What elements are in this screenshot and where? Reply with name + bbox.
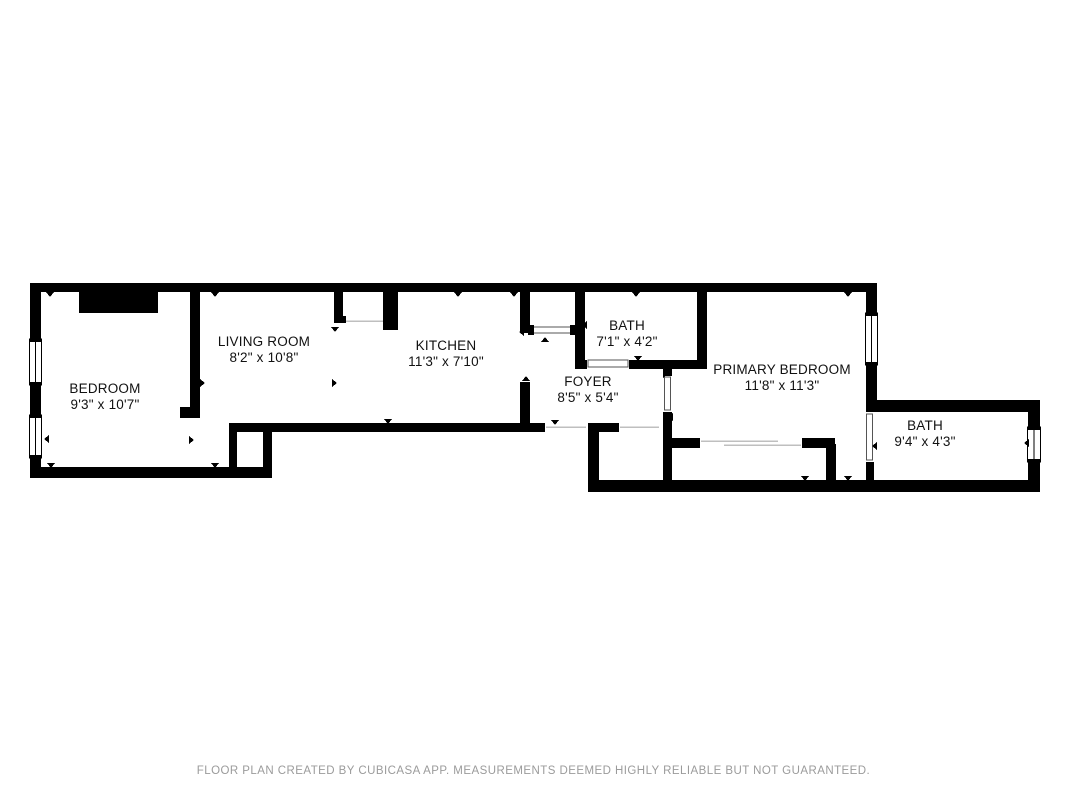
room-name: BEDROOM <box>69 381 140 397</box>
wall-segment <box>79 290 158 313</box>
tick-icon <box>44 435 49 443</box>
tick-icon <box>551 420 559 425</box>
wall-segment <box>672 438 700 448</box>
room-name: PRIMARY BEDROOM <box>713 362 851 378</box>
tick-icon <box>200 379 205 387</box>
wall-segment <box>30 467 272 478</box>
room-dimensions: 9'3" x 10'7" <box>69 397 140 413</box>
wall-segment <box>588 480 1040 492</box>
room-dimensions: 7'1" x 4'2" <box>596 334 657 350</box>
wall-segment <box>229 423 545 432</box>
walls <box>30 283 1040 492</box>
floor-plan-page: BEDROOM 9'3" x 10'7" LIVING ROOM 8'2" x … <box>0 0 1067 800</box>
wall-segment <box>588 423 619 432</box>
tick-icon <box>46 292 54 297</box>
tick-icon <box>332 379 337 387</box>
wall-segment <box>697 290 707 369</box>
window-symbol <box>866 313 878 365</box>
room-label-bath: BATH 7'1" x 4'2" <box>596 318 657 350</box>
window-symbol <box>30 339 42 385</box>
room-dimensions: 8'2" x 10'8" <box>218 350 310 366</box>
wall-segment <box>383 290 398 330</box>
wall-segment <box>826 444 836 484</box>
tick-icon <box>1024 439 1029 447</box>
tick-icon <box>331 327 339 332</box>
tick-icon <box>632 292 640 297</box>
tick-icon <box>189 436 194 444</box>
room-dimensions: 11'8" x 11'3" <box>713 378 851 394</box>
wall-segment <box>334 316 346 323</box>
door-leaf <box>867 414 873 460</box>
tick-icon <box>454 292 462 297</box>
wall-segment <box>190 290 200 407</box>
tick-icon <box>522 376 530 381</box>
room-name: LIVING ROOM <box>218 334 310 350</box>
wall-segment <box>866 400 1040 412</box>
room-dimensions: 9'4" x 4'3" <box>894 434 955 450</box>
tick-icon <box>844 292 852 297</box>
tick-icon <box>211 292 219 297</box>
room-name: KITCHEN <box>408 338 484 354</box>
wall-segment <box>575 290 585 367</box>
door-leaf <box>588 360 628 367</box>
wall-segment <box>229 429 237 467</box>
door-leaf <box>665 377 671 410</box>
room-dimensions: 11'3" x 7'10" <box>408 354 484 370</box>
windows <box>30 313 1041 462</box>
room-name: BATH <box>596 318 657 334</box>
room-label-bedroom: BEDROOM 9'3" x 10'7" <box>69 381 140 413</box>
wall-segment <box>575 360 587 369</box>
floor-plan-drawing <box>0 0 1067 800</box>
window-symbol <box>1028 427 1041 462</box>
room-dimensions: 8'5" x 5'4" <box>557 390 618 406</box>
room-label-foyer: FOYER 8'5" x 5'4" <box>557 374 618 406</box>
room-label-primary-bedroom: PRIMARY BEDROOM 11'8" x 11'3" <box>713 362 851 394</box>
room-label-bath-2: BATH 9'4" x 4'3" <box>894 418 955 450</box>
wall-segment <box>866 462 874 482</box>
room-name: BATH <box>894 418 955 434</box>
room-label-kitchen: KITCHEN 11'3" x 7'10" <box>408 338 484 370</box>
door-leaf <box>533 327 571 333</box>
room-name: FOYER <box>557 374 618 390</box>
door-jamb <box>528 325 534 335</box>
window-symbol <box>30 415 42 458</box>
wall-segment <box>520 382 530 425</box>
tick-icon <box>510 292 518 297</box>
wall-segment <box>180 407 200 418</box>
disclaimer-text: FLOOR PLAN CREATED BY CUBICASA APP. MEAS… <box>0 765 1067 777</box>
tick-icon <box>541 337 549 342</box>
room-label-living-room: LIVING ROOM 8'2" x 10'8" <box>218 334 310 366</box>
door-jamb <box>570 325 576 335</box>
